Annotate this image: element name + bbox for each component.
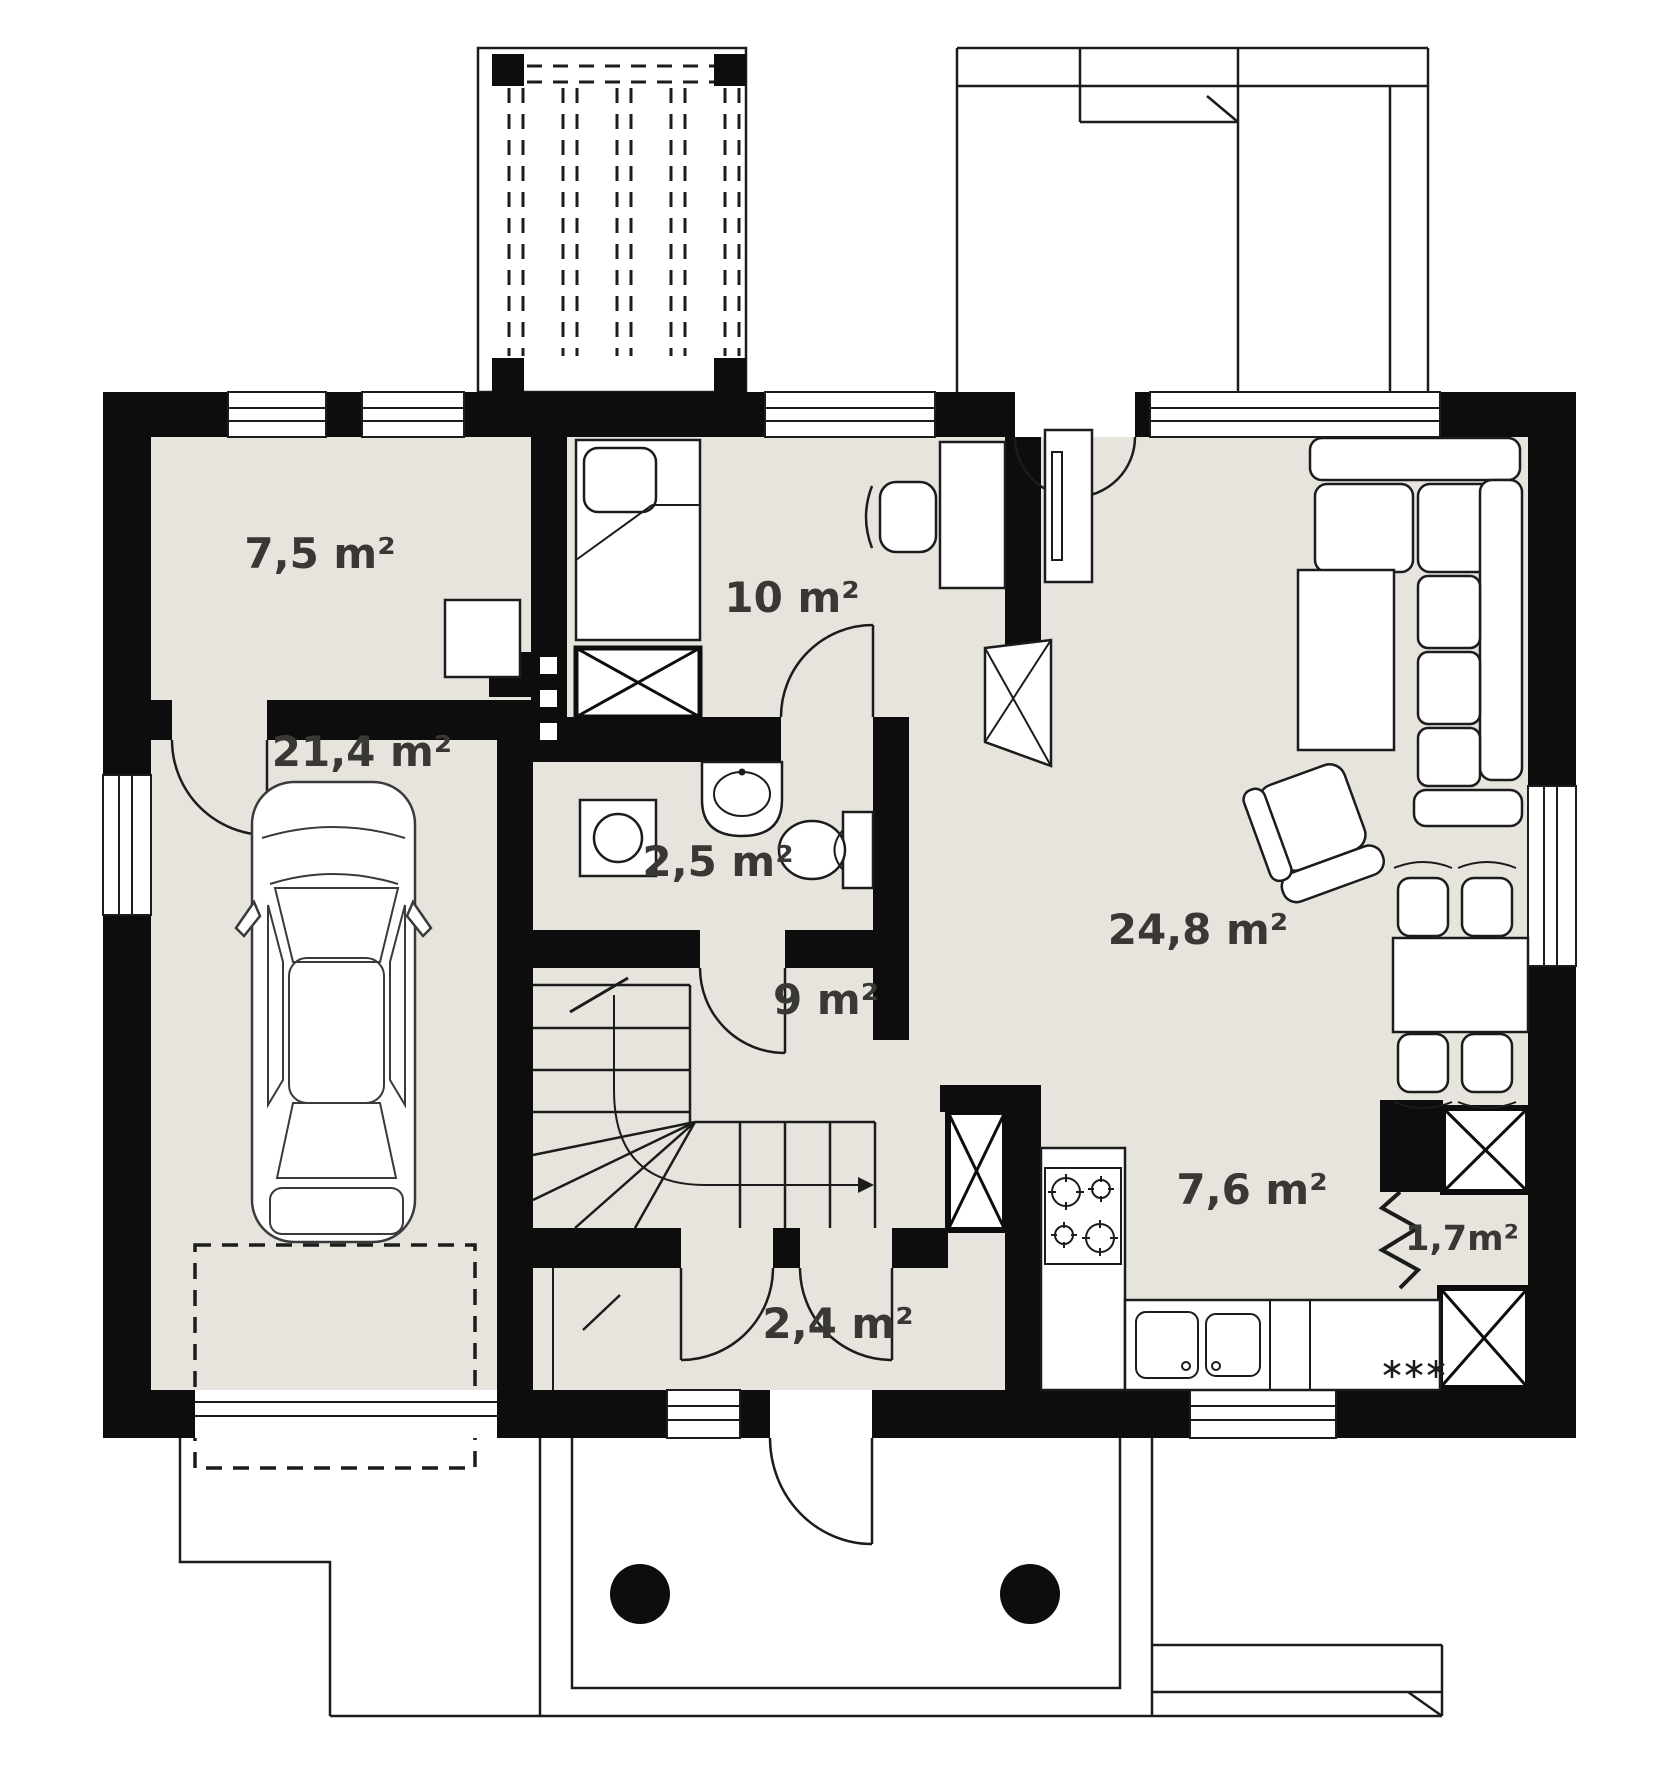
floor-plan-drawing: 7,5 m² 10 m² 21,4 m² 2,5 m² 9 m² 24,8 m²… (0, 0, 1680, 1772)
window-living-top (1150, 392, 1440, 437)
pergola-posts (492, 54, 746, 392)
utility-table (445, 600, 520, 677)
terrace-walkway (957, 48, 1428, 392)
window-kitchen (1190, 1390, 1336, 1438)
cooktop (1045, 1168, 1121, 1264)
label-utility-room: 7,5 m² (244, 529, 395, 578)
porch-column (1000, 1564, 1060, 1624)
window-garage (103, 775, 151, 915)
window-bedroom (765, 392, 935, 437)
label-pantry: 1,7m² (1405, 1219, 1519, 1259)
driveway (180, 1438, 330, 1716)
ventilation-shaft-pantry-top (1443, 1108, 1528, 1192)
ventilation-shaft-kitchen (948, 1112, 1005, 1230)
ventilation-shaft-pantry-bottom (1440, 1288, 1528, 1388)
car (236, 782, 431, 1242)
label-bathroom: 2,5 m² (642, 837, 793, 886)
dishwasher-symbol (1384, 1360, 1444, 1378)
porch (330, 1438, 1442, 1716)
label-living-room: 24,8 m² (1108, 905, 1288, 954)
window-utility-right (362, 392, 464, 437)
floor-plan-page: 7,5 m² 10 m² 21,4 m² 2,5 m² 9 m² 24,8 m²… (0, 0, 1680, 1772)
label-bedroom: 10 m² (724, 573, 859, 622)
duct-wall-niches (540, 657, 557, 740)
porch-column (610, 1564, 670, 1624)
garage-door-opening (195, 1390, 497, 1438)
coffee-table (1298, 570, 1394, 750)
desk (940, 442, 1005, 588)
window-vestibule (667, 1390, 740, 1438)
dining-table (1393, 938, 1528, 1032)
ventilation-shaft-bedroom (576, 648, 700, 717)
tv-unit (1045, 430, 1092, 582)
window-dining (1528, 786, 1576, 966)
label-vestibule: 2,4 m² (762, 1299, 913, 1348)
door-front-entrance (770, 1438, 872, 1544)
pergola (478, 48, 746, 392)
kitchen-sink (1136, 1312, 1260, 1378)
label-garage: 21,4 m² (272, 727, 452, 776)
single-bed (576, 440, 700, 640)
label-hall: 9 m² (773, 975, 879, 1024)
window-utility-left (228, 392, 326, 437)
front-door-opening (770, 1390, 872, 1438)
label-kitchen: 7,6 m² (1176, 1165, 1327, 1214)
washbasin (702, 762, 782, 836)
